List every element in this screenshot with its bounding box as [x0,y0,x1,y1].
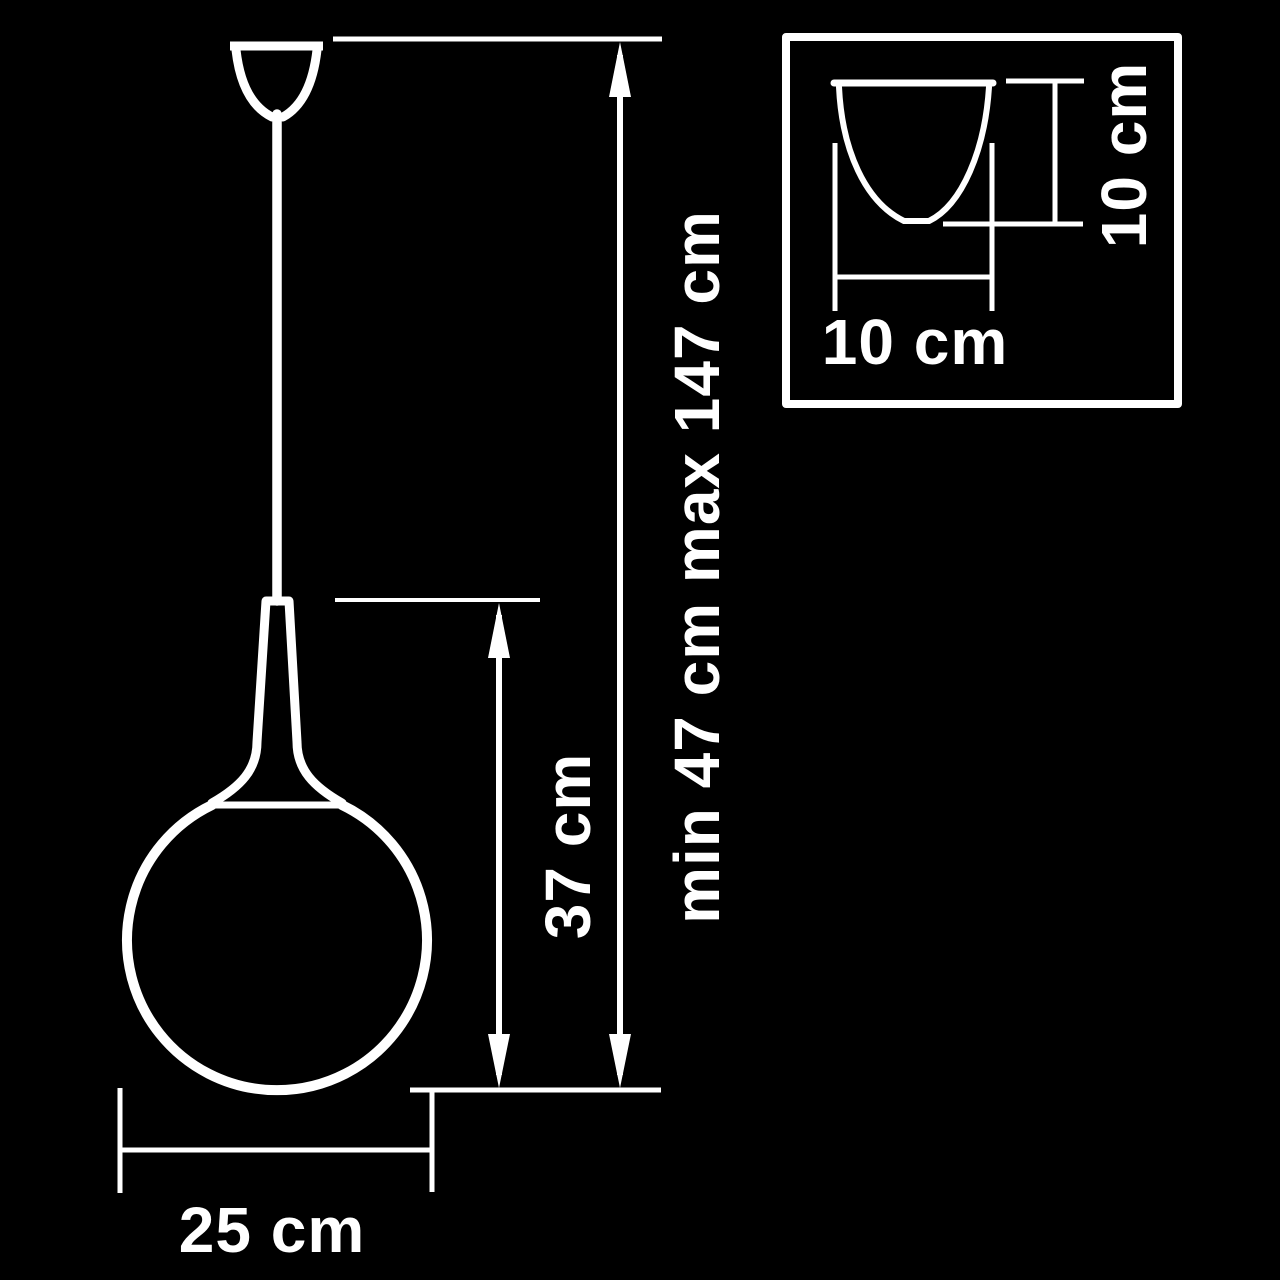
label-total-height: min 47 cm max 147 cm [661,210,733,924]
pendant-lamp-dimension-diagram: 25 cm 37 cm min 47 cm max 147 cm 10 cm 1… [0,0,1280,1280]
label-shade-diameter: 25 cm [179,1194,365,1266]
inset-label-canopy-width: 10 cm [822,306,1008,378]
label-shade-height: 37 cm [532,753,604,939]
inset-label-canopy-height: 10 cm [1088,62,1160,248]
diagram-stage: 25 cm 37 cm min 47 cm max 147 cm 10 cm 1… [0,0,1280,1280]
